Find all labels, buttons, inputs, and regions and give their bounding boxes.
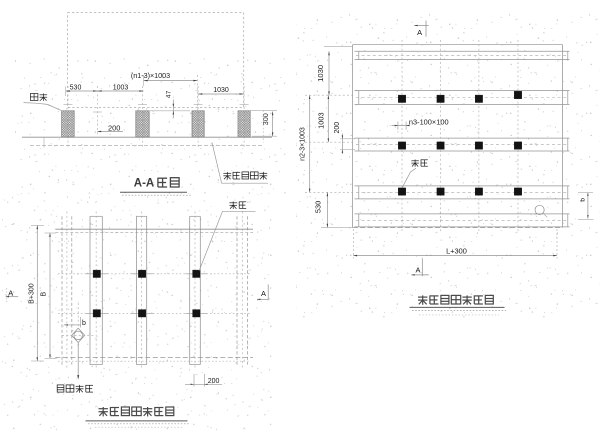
svg-text:1030: 1030 (213, 87, 229, 94)
svg-text:b: b (579, 198, 586, 202)
svg-text:200: 200 (108, 124, 120, 133)
svg-text:200: 200 (334, 122, 341, 134)
svg-text:B+300: B+300 (29, 283, 36, 304)
svg-text:A: A (261, 289, 266, 298)
svg-text:1003: 1003 (113, 84, 129, 91)
svg-text:A: A (416, 266, 421, 275)
svg-text:L+300: L+300 (446, 246, 467, 255)
svg-text:47: 47 (166, 90, 173, 98)
svg-text:n2-3×1003: n2-3×1003 (300, 127, 307, 161)
svg-text:(n1-3)×1003: (n1-3)×1003 (131, 71, 170, 80)
svg-text:b: b (82, 320, 86, 327)
svg-text:A: A (417, 28, 422, 37)
svg-text:300: 300 (261, 113, 270, 125)
svg-text:B: B (41, 292, 48, 297)
svg-text:n3-100×100: n3-100×100 (409, 118, 449, 127)
svg-text:530: 530 (70, 84, 82, 91)
svg-text:1030: 1030 (316, 65, 325, 82)
svg-text:A-A: A-A (134, 178, 154, 190)
svg-text:200: 200 (208, 378, 220, 385)
svg-text:1003: 1003 (316, 112, 325, 128)
svg-text:530: 530 (314, 201, 323, 213)
